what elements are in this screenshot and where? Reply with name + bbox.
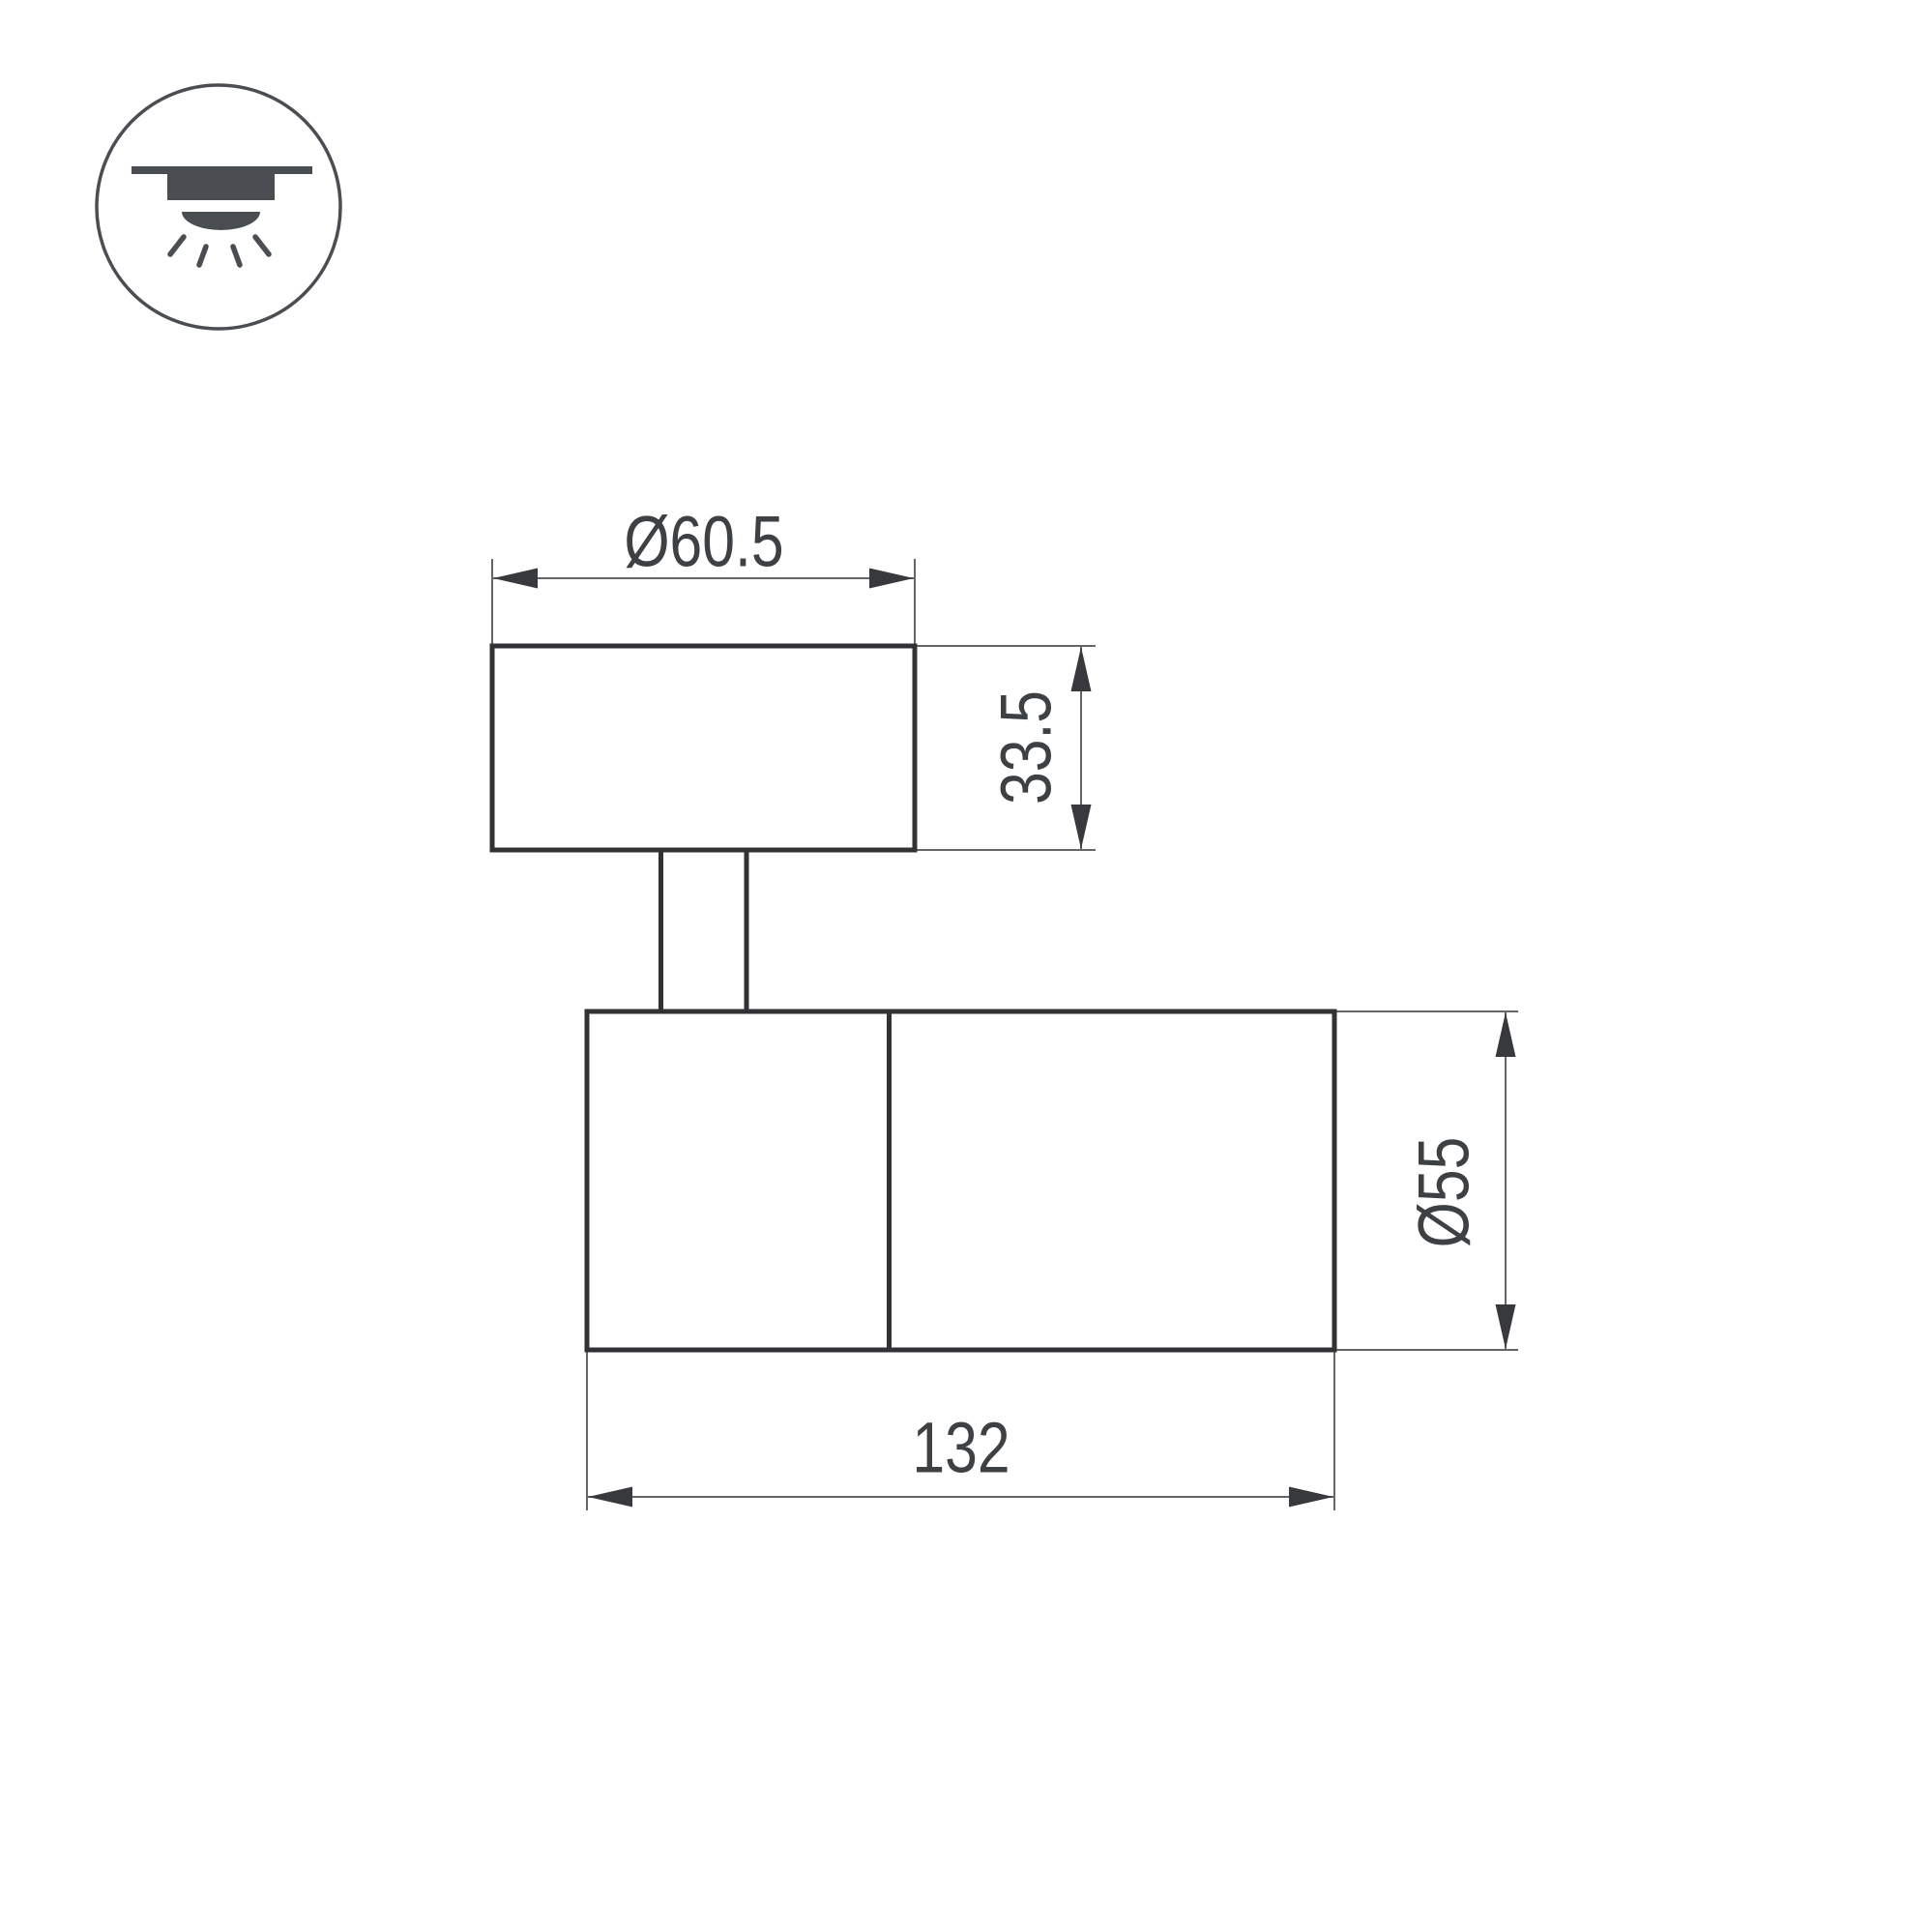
icon-circle xyxy=(97,85,340,329)
dimension-label: 33.5 xyxy=(987,690,1067,805)
technical-drawing-canvas: Ø60.5 33.5 Ø55 132 xyxy=(0,0,1932,1932)
icon-fixture-body xyxy=(167,170,275,200)
icon-light-ray xyxy=(233,247,240,265)
dimension-top-diameter: Ø60.5 xyxy=(492,503,915,646)
stem-outline xyxy=(661,850,747,1011)
arrowhead xyxy=(493,569,538,589)
dimension-label: Ø55 xyxy=(1405,1137,1484,1248)
body-outline xyxy=(587,1011,1334,1350)
drawing-page: Ø60.5 33.5 Ø55 132 xyxy=(0,0,1932,1932)
dimension-body-length: 132 xyxy=(587,1352,1334,1510)
icon-light-dome xyxy=(182,212,260,230)
dimension-label: Ø60.5 xyxy=(624,503,783,582)
dimension-label: 132 xyxy=(912,1409,1010,1488)
arrowhead xyxy=(588,1487,632,1508)
ceiling-mount-icon xyxy=(97,85,340,329)
mount-base-outline xyxy=(492,646,915,850)
arrowhead xyxy=(1071,805,1092,849)
arrowhead xyxy=(869,569,914,589)
icon-ceiling-line xyxy=(132,166,312,174)
arrowhead xyxy=(1289,1487,1333,1508)
arrowhead xyxy=(1496,1304,1516,1349)
icon-light-ray xyxy=(255,237,269,254)
dimension-body-diameter: Ø55 xyxy=(1336,1011,1518,1350)
fixture-outline xyxy=(492,646,1334,1350)
icon-light-ray xyxy=(199,247,206,265)
arrowhead xyxy=(1496,1012,1516,1057)
dimension-base-height: 33.5 xyxy=(915,646,1096,850)
icon-light-ray xyxy=(170,237,184,254)
arrowhead xyxy=(1071,647,1092,691)
